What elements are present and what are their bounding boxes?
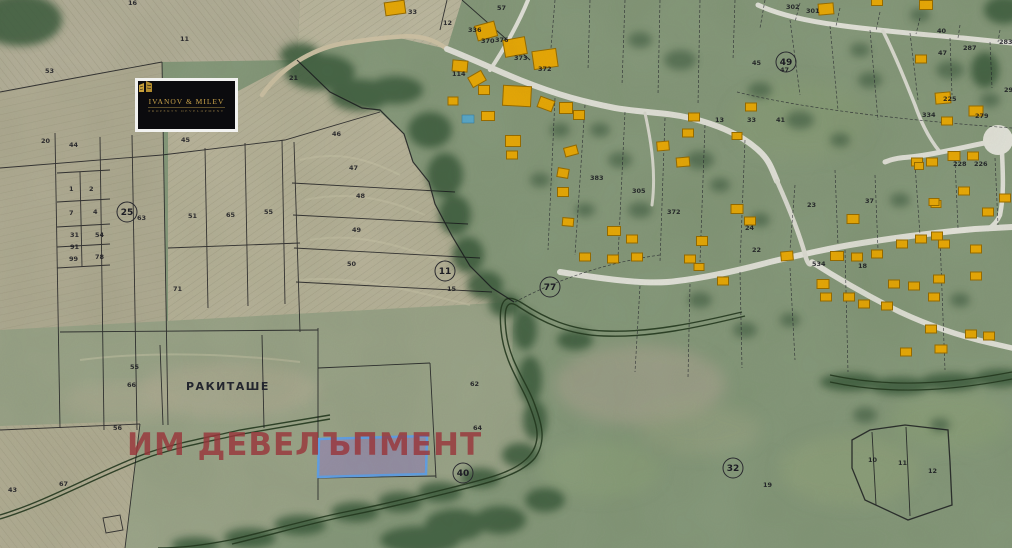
logo-subtitle: PROPERTY DEVELOPMENT: [148, 107, 224, 113]
map-canvas[interactable]: 5316112157204445127431549199786351655571…: [0, 0, 1012, 548]
locality-label: РАКИТАШЕ: [186, 380, 270, 393]
company-logo: IVANOV & MILEV PROPERTY DEVELOPMENT: [135, 78, 238, 132]
building-towers-icon: [138, 81, 154, 92]
developer-watermark: ИМ ДЕВЕЛЪПМЕНТ: [127, 427, 482, 463]
logo-title: IVANOV & MILEV: [149, 97, 225, 106]
